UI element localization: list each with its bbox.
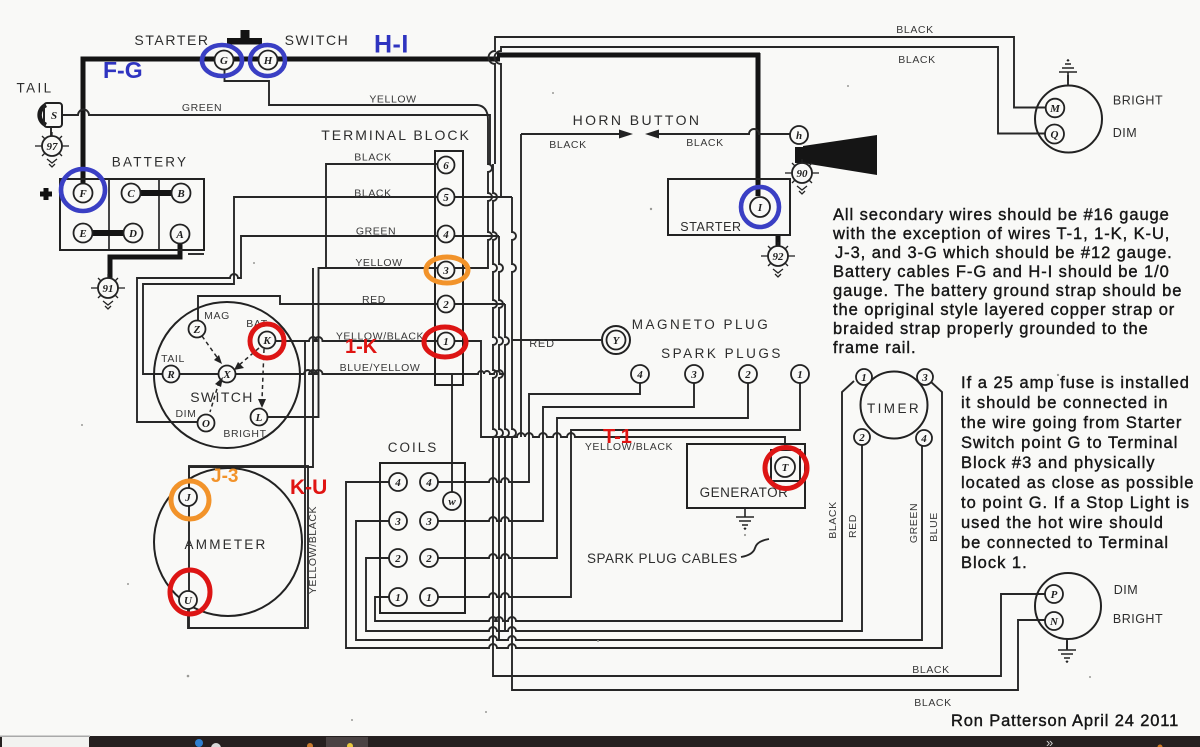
svg-text:2: 2 — [394, 553, 401, 565]
svg-text:B: B — [176, 188, 184, 200]
svg-text:N: N — [1049, 616, 1059, 628]
svg-text:3: 3 — [442, 265, 449, 277]
svg-text:6: 6 — [443, 160, 449, 172]
svg-text:5: 5 — [443, 192, 449, 204]
svg-text:Switch point G to Terminal: Switch point G to Terminal — [961, 434, 1178, 452]
svg-text:be connected to Terminal: be connected to Terminal — [961, 534, 1169, 552]
svg-text:BATTERY: BATTERY — [112, 155, 188, 170]
svg-text:K: K — [262, 335, 271, 347]
svg-text:MAGNETO PLUG: MAGNETO PLUG — [632, 317, 771, 332]
svg-text:DIM: DIM — [175, 408, 196, 420]
svg-text:4: 4 — [920, 433, 927, 445]
svg-text:located as close as possible: located as close as possible — [961, 474, 1194, 492]
svg-text:R: R — [166, 369, 174, 381]
svg-text:2: 2 — [858, 432, 865, 444]
svg-text:3: 3 — [690, 369, 697, 381]
svg-text:1: 1 — [395, 592, 401, 604]
svg-text:BLACK: BLACK — [549, 139, 586, 151]
svg-text:STARTER: STARTER — [134, 32, 209, 48]
svg-text:4: 4 — [442, 229, 449, 241]
svg-text:SWITCH: SWITCH — [285, 32, 350, 48]
svg-text:2: 2 — [744, 369, 751, 381]
svg-text:YELLOW: YELLOW — [355, 257, 402, 269]
svg-text:it should be connected in: it should be connected in — [961, 394, 1169, 412]
svg-text:1: 1 — [797, 369, 803, 381]
svg-text:h: h — [796, 130, 802, 142]
svg-text:All secondary wires should be: All secondary wires should be #16 gauge — [833, 206, 1170, 224]
svg-text:YELLOW: YELLOW — [369, 94, 416, 106]
svg-text:E: E — [78, 228, 86, 240]
svg-text:BLACK: BLACK — [912, 664, 949, 676]
svg-text:J-3: J-3 — [211, 466, 238, 487]
svg-text:TIMER: TIMER — [867, 401, 921, 416]
svg-text:90: 90 — [797, 168, 809, 180]
svg-text:97: 97 — [47, 141, 59, 153]
svg-text:91: 91 — [103, 283, 114, 295]
svg-text:with the exception of wires T-: with the exception of wires T-1, 1-K, K-… — [832, 225, 1170, 243]
svg-text:J-3, and 3-G which should be: J-3, and 3-G which should be #12 gauge. — [835, 244, 1173, 262]
svg-text:TAIL: TAIL — [16, 81, 53, 96]
svg-text:L: L — [255, 412, 263, 424]
svg-text:2: 2 — [425, 553, 432, 565]
svg-text:A: A — [175, 229, 183, 241]
svg-text:STARTER: STARTER — [680, 220, 741, 234]
svg-text:BLACK: BLACK — [827, 501, 839, 538]
svg-text:BRIGHT: BRIGHT — [1113, 94, 1163, 108]
svg-text:BLACK: BLACK — [354, 188, 391, 200]
svg-text:3: 3 — [394, 516, 401, 528]
svg-text:SWITCH: SWITCH — [190, 389, 254, 405]
svg-text:braided strap properly grounde: braided strap properly grounded to the — [833, 320, 1149, 338]
svg-text:K-U: K-U — [290, 476, 327, 499]
svg-text:the opriginal style layered co: the opriginal style layered copper strap… — [833, 301, 1175, 319]
svg-text:4: 4 — [394, 477, 401, 489]
svg-text:w: w — [448, 496, 456, 508]
svg-text:Z: Z — [193, 324, 201, 336]
svg-text:BRIGHT: BRIGHT — [223, 428, 266, 440]
svg-text:BLACK: BLACK — [896, 24, 933, 36]
svg-text:1: 1 — [443, 336, 449, 348]
svg-text:H-I: H-I — [374, 31, 409, 59]
svg-text:T-1: T-1 — [603, 426, 632, 448]
svg-text:BLACK: BLACK — [686, 137, 723, 149]
svg-text:RED: RED — [362, 294, 386, 306]
svg-text:I: I — [757, 202, 763, 214]
svg-text:C: C — [127, 188, 135, 200]
svg-text:1: 1 — [861, 372, 867, 384]
svg-text:DIM: DIM — [1114, 583, 1138, 597]
svg-text:M: M — [1049, 103, 1061, 115]
svg-text:92: 92 — [773, 251, 785, 263]
svg-text:used the hot wire should: used the hot wire should — [961, 514, 1164, 532]
svg-text:U: U — [184, 595, 193, 607]
svg-text:to point G. If a Stop Light is: to point G. If a Stop Light is — [961, 494, 1190, 512]
svg-text:S: S — [51, 110, 57, 122]
svg-text:SPARK PLUG CABLES: SPARK PLUG CABLES — [587, 551, 738, 566]
svg-text:GREEN: GREEN — [908, 503, 920, 543]
svg-text:BLUE/YELLOW: BLUE/YELLOW — [340, 362, 421, 374]
svg-text:SPARK PLUGS: SPARK PLUGS — [661, 346, 783, 361]
svg-text:BLACK: BLACK — [914, 697, 951, 709]
svg-text:3: 3 — [921, 372, 928, 384]
svg-text:F: F — [78, 188, 87, 200]
svg-text:F-G: F-G — [103, 57, 143, 83]
svg-text:frame rail.: frame rail. — [833, 339, 916, 357]
svg-text:4: 4 — [636, 369, 643, 381]
svg-text:If a 25 amp fuse is installed: If a 25 amp fuse is installed — [961, 374, 1190, 392]
svg-text:Block 1.: Block 1. — [961, 554, 1028, 572]
svg-text:DIM: DIM — [1113, 126, 1137, 140]
svg-text:X: X — [222, 369, 231, 381]
svg-text:D: D — [128, 228, 137, 240]
svg-text:BLACK: BLACK — [898, 54, 935, 66]
svg-text:RED: RED — [847, 514, 859, 538]
svg-text:YELLOW/BLACK: YELLOW/BLACK — [307, 506, 319, 594]
svg-text:O: O — [202, 418, 210, 430]
svg-text:Block #3 and physically: Block #3 and physically — [961, 454, 1156, 472]
svg-text:G: G — [220, 55, 228, 67]
svg-text:BLUE: BLUE — [928, 512, 940, 542]
svg-text:P: P — [1051, 589, 1058, 601]
svg-text:1-K: 1-K — [345, 336, 378, 358]
svg-text:the wire going from Starter: the wire going from Starter — [961, 414, 1182, 432]
svg-text:Battery cables F-G and H-I sho: Battery cables F-G and H-I should be 1/0 — [833, 263, 1170, 281]
svg-text:H: H — [263, 55, 273, 67]
svg-text:BRIGHT: BRIGHT — [1113, 612, 1163, 626]
svg-text:AMMETER: AMMETER — [185, 537, 268, 552]
svg-text:MAG: MAG — [204, 310, 230, 322]
svg-text:GREEN: GREEN — [182, 102, 222, 114]
svg-text:1: 1 — [426, 592, 432, 604]
svg-text:»: » — [1046, 735, 1053, 747]
svg-text:HORN BUTTON: HORN BUTTON — [573, 112, 702, 128]
svg-text:Q: Q — [1051, 129, 1059, 141]
svg-text:4: 4 — [425, 477, 432, 489]
svg-text:TERMINAL BLOCK: TERMINAL BLOCK — [321, 127, 471, 143]
svg-text:3: 3 — [425, 516, 432, 528]
svg-text:J: J — [184, 492, 191, 504]
svg-text:RED: RED — [529, 338, 555, 350]
svg-text:2: 2 — [442, 299, 449, 311]
svg-text:COILS: COILS — [388, 440, 439, 455]
svg-text:Ron Patterson April 24 2011: Ron Patterson April 24 2011 — [951, 712, 1179, 730]
svg-text:BLACK: BLACK — [354, 152, 391, 164]
svg-text:GREEN: GREEN — [356, 226, 396, 238]
svg-text:gauge. The battery ground stra: gauge. The battery ground strap should b… — [833, 282, 1182, 300]
svg-text:TAIL: TAIL — [161, 353, 185, 365]
